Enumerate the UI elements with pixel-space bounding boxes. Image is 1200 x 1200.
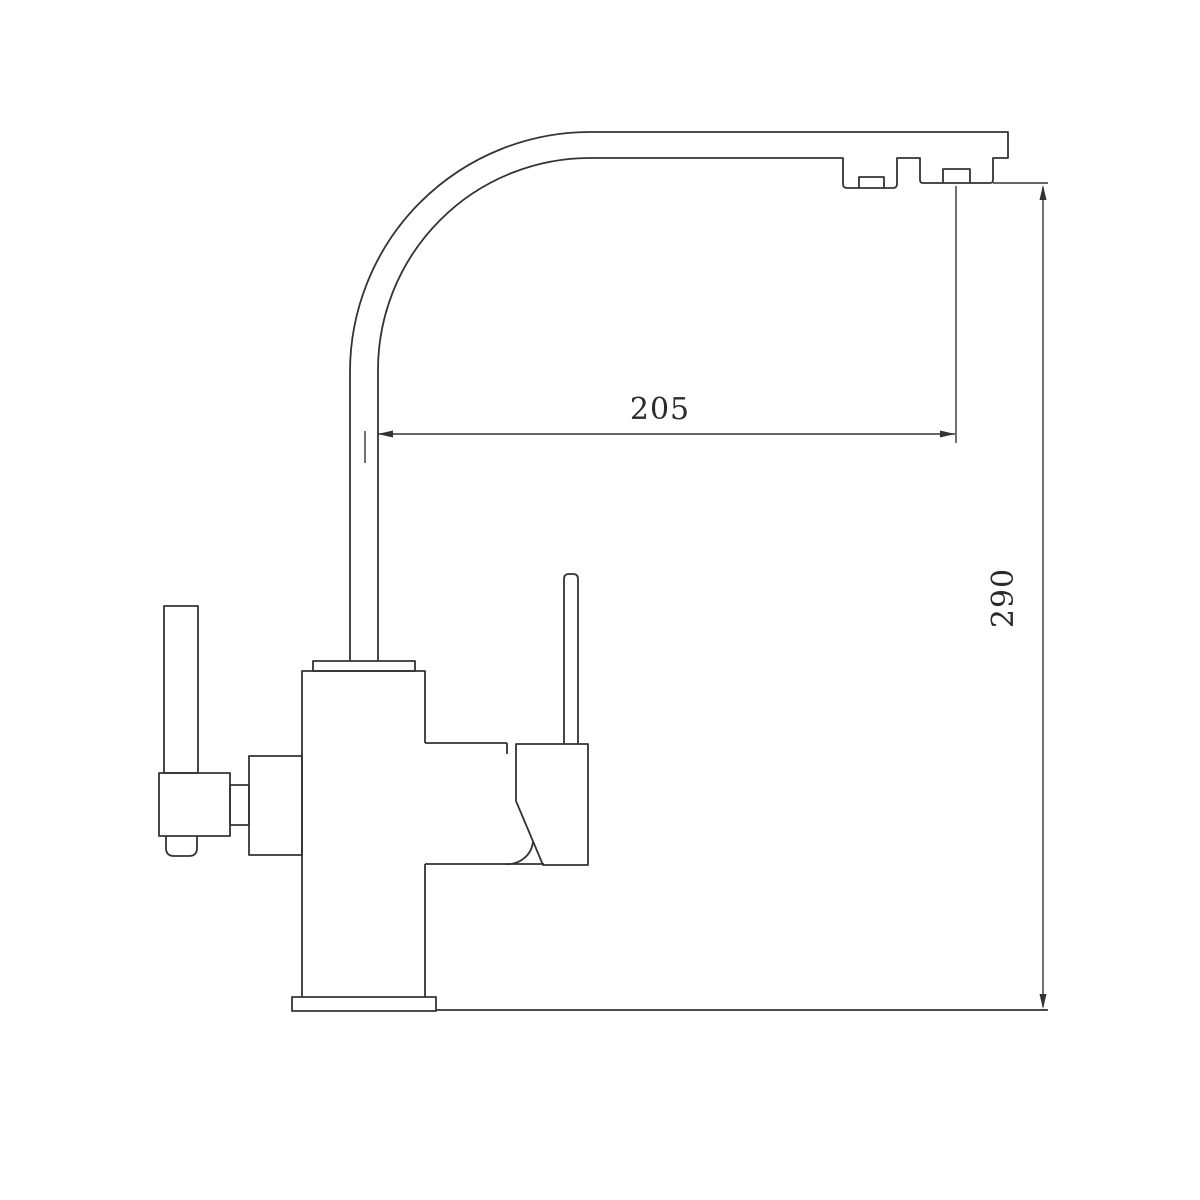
riser-collar bbox=[313, 661, 415, 671]
height-dimension-label: 290 bbox=[986, 568, 1021, 628]
right-handle-lever bbox=[564, 574, 578, 744]
height-arrow-up bbox=[1040, 185, 1047, 200]
dimension-spout-height: 290 bbox=[986, 183, 1048, 1009]
reach-arrow-right bbox=[940, 431, 955, 438]
left-handle-neck bbox=[230, 785, 249, 825]
base-flange bbox=[292, 997, 436, 1011]
front-outlet-aerator bbox=[859, 177, 884, 188]
dimension-spout-reach: 205 bbox=[365, 186, 956, 463]
reach-dimension-label: 205 bbox=[630, 392, 690, 427]
faucet-outline-group bbox=[159, 132, 1048, 1011]
reach-arrow-left bbox=[378, 431, 393, 438]
left-handle-lever bbox=[164, 606, 198, 773]
faucet-technical-drawing: 205 290 bbox=[0, 0, 1200, 1200]
left-handle-escutcheon bbox=[249, 756, 302, 855]
right-handle-fillet-arc bbox=[506, 841, 533, 864]
end-outlet-aerator bbox=[943, 169, 970, 183]
faucet-body bbox=[302, 671, 425, 997]
height-arrow-down bbox=[1040, 994, 1047, 1009]
left-handle-knob bbox=[159, 773, 230, 836]
right-arm-lines bbox=[425, 743, 544, 864]
technical-drawing-page: 205 290 bbox=[0, 0, 1200, 1200]
right-handle-base bbox=[516, 744, 588, 865]
left-handle-stub bbox=[166, 836, 197, 856]
